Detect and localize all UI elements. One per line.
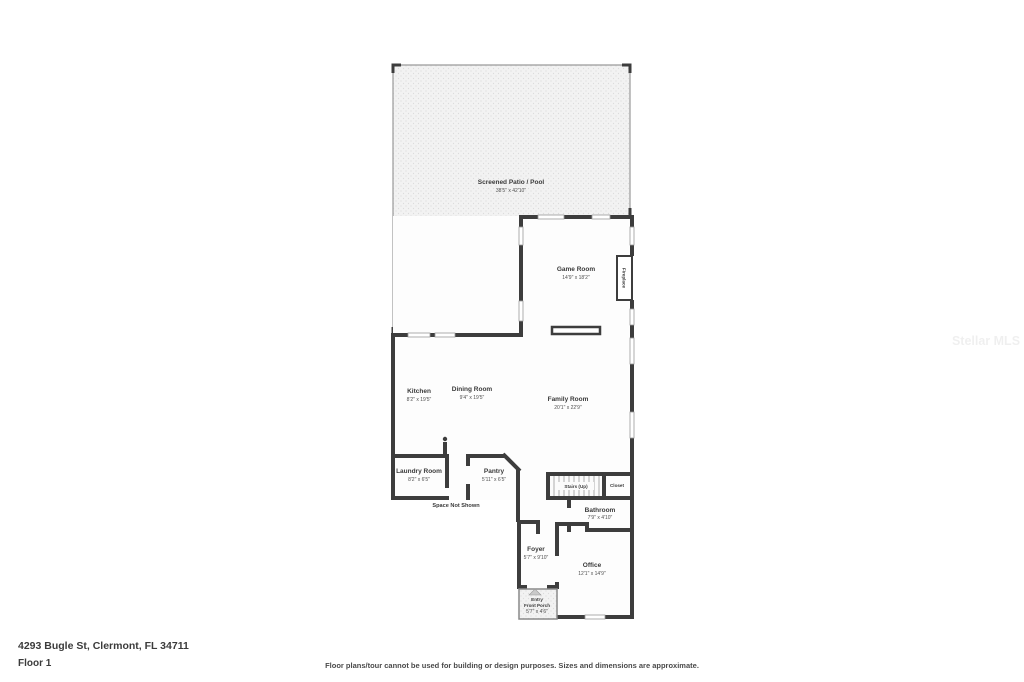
pantry-label: Pantry [484,468,505,475]
foyer-label: Foyer [527,546,545,553]
media-console [552,327,600,334]
property-address: 4293 Bugle St, Clermont, FL 34711 [18,640,189,652]
fireplace: Fireplace [617,256,632,300]
game-room-dims: 14'9" x 18'2" [562,275,590,281]
laundry-room-label: Laundry Room [396,468,442,475]
porch-label-line1: Entry [531,597,543,602]
stairs: Stairs (Up) [550,476,602,496]
floorplan-page: Fireplace Stairs (Up) Entry Front Porch … [0,0,1024,682]
bathroom-dims: 7'9" x 4'10" [588,515,613,521]
kitchen-label: Kitchen [407,388,431,395]
floorplan-drawing: Fireplace Stairs (Up) Entry Front Porch … [0,0,1024,682]
game-room-label: Game Room [557,266,596,273]
foyer-dims: 5'7" x 9'10" [524,555,549,561]
family-room-label: Family Room [548,396,589,403]
porch-label-line2: Front Porch [524,603,550,608]
closet-label: Closet [610,483,625,488]
pantry-dims: 5'11" x 6'5" [482,477,506,483]
kitchen-dims: 8'2" x 19'5" [407,397,432,403]
fireplace-label: Fireplace [622,268,627,289]
patio-label: Screened Patio / Pool [478,179,545,186]
stairs-label: Stairs (Up) [564,484,588,489]
entry-front-porch: Entry Front Porch 5'7" x 4'6" [519,589,557,619]
disclaimer-text: Floor plans/tour cannot be used for buil… [0,661,1024,670]
space-not-shown-label: Space Not Shown [432,503,480,509]
family-room-dims: 20'1" x 22'9" [554,405,582,411]
door-hinge-dot [443,437,447,441]
office-dims: 12'1" x 14'9" [578,571,606,577]
dining-room-dims: 9'4" x 19'5" [460,395,485,401]
office-label: Office [583,562,602,569]
porch-dims: 5'7" x 4'6" [526,609,548,615]
stellar-mls-watermark: Stellar MLS [952,334,1020,348]
patio-dims: 38'5" x 42'10" [496,188,526,194]
dining-room-label: Dining Room [452,386,493,393]
laundry-room-dims: 8'2" x 6'5" [408,477,430,483]
bathroom-label: Bathroom [585,507,616,514]
